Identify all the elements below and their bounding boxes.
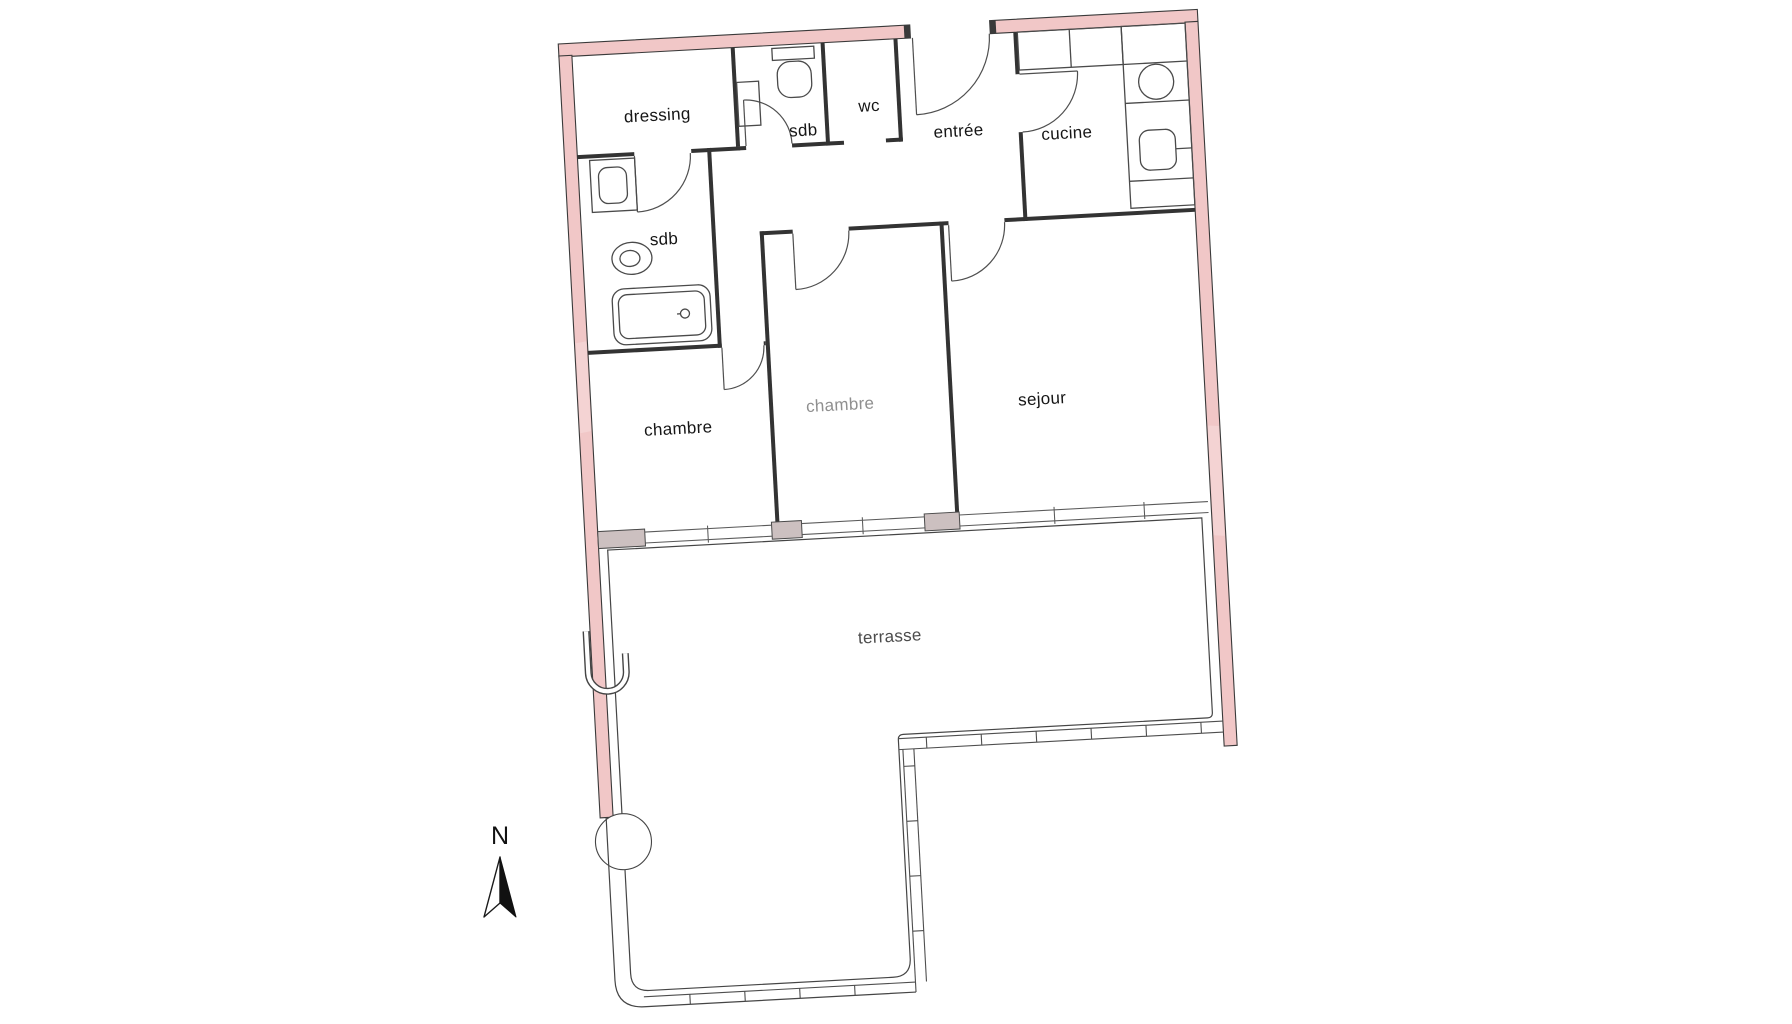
terrace-railing: [603, 721, 1237, 1008]
living-room-door-icon: [949, 222, 1008, 281]
toilet-icon: [777, 60, 813, 98]
bedroom-middle-door-icon: [793, 231, 852, 290]
room-label-dressing: dressing: [623, 104, 691, 128]
room-label-entree: entrée: [933, 120, 984, 143]
interior-walls: [572, 23, 1211, 533]
window-wall-stub: [598, 529, 646, 549]
kitchen-counter-right: [1121, 23, 1195, 208]
room-label-chambre-left: chambre: [644, 417, 713, 441]
bathtub-icon: [612, 284, 713, 345]
room-label-sejour: sejour: [1018, 388, 1067, 411]
screenshot-root: { "rooms": [ {"id": "dressing", "label":…: [0, 0, 1792, 1024]
bedroom-left-door-icon: [722, 345, 766, 389]
north-label: N: [472, 822, 528, 851]
kitchen-stove-icon: [1139, 129, 1177, 171]
washbasin-icon: [590, 158, 638, 212]
entrance-door-icon: [912, 34, 993, 115]
north-arrow-icon: [478, 853, 522, 925]
room-label-wc: wc: [858, 96, 880, 117]
toilet-icon: [611, 241, 653, 275]
bathroom-door-icon: [634, 153, 693, 212]
room-label-sdb-top: sdb: [789, 120, 818, 142]
room-label-sdb-main: sdb: [649, 229, 678, 251]
kitchen-fixtures: [1017, 23, 1195, 214]
washbasin-bowl-icon: [598, 167, 628, 204]
toilet-tank-icon: [772, 46, 815, 60]
window-wall-stub: [771, 521, 802, 540]
room-label-cucine: cucine: [1041, 122, 1093, 145]
kitchen-sink-icon: [1138, 63, 1175, 100]
terrace-notch: [594, 812, 653, 871]
bathroom-top-fixtures: [735, 46, 818, 126]
entrance-jamb-right: [990, 20, 997, 33]
terrace-hatch: [608, 518, 1226, 992]
terrace: [580, 517, 1237, 1009]
windows: [598, 499, 1209, 549]
bathroom-top-door-icon: [744, 98, 792, 146]
floor-plan: dressing sdb wc entrée cucine sdb chambr…: [558, 9, 1250, 1012]
washbasin-icon: [737, 81, 761, 126]
room-label-chambre-middle: chambre: [806, 393, 875, 417]
room-label-terrasse: terrasse: [857, 625, 922, 648]
entrance-jamb-left: [904, 25, 911, 38]
floor-plan-drawing: [558, 9, 1250, 1012]
compass: N: [472, 822, 528, 932]
window-wall-stub: [924, 512, 960, 531]
